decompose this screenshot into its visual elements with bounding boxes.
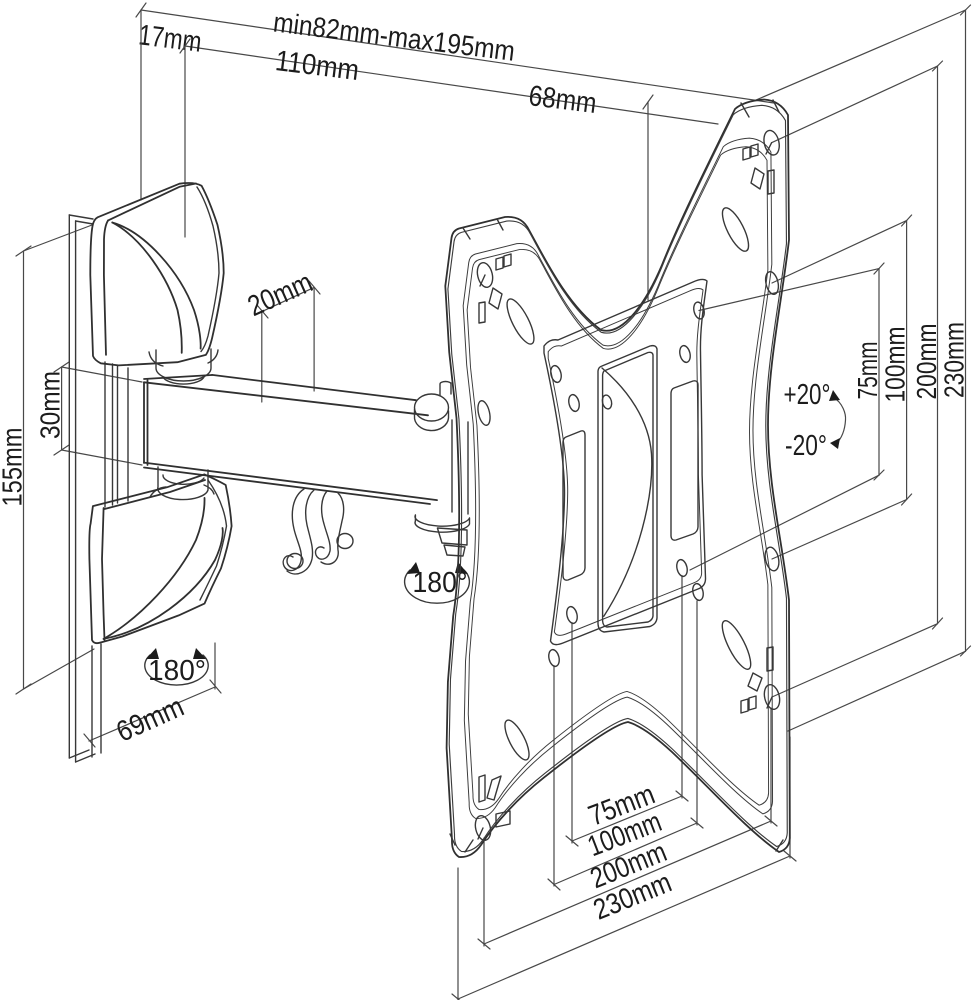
- svg-text:180°: 180°: [148, 655, 206, 687]
- svg-text:+20°: +20°: [784, 379, 831, 411]
- svg-text:200mm: 200mm: [911, 324, 942, 400]
- svg-text:230mm: 230mm: [939, 322, 970, 398]
- svg-text:-20°: -20°: [785, 430, 827, 462]
- svg-text:155mm: 155mm: [0, 428, 28, 507]
- svg-text:75mm: 75mm: [852, 342, 883, 400]
- svg-text:100mm: 100mm: [880, 327, 911, 403]
- svg-text:30mm: 30mm: [35, 371, 66, 439]
